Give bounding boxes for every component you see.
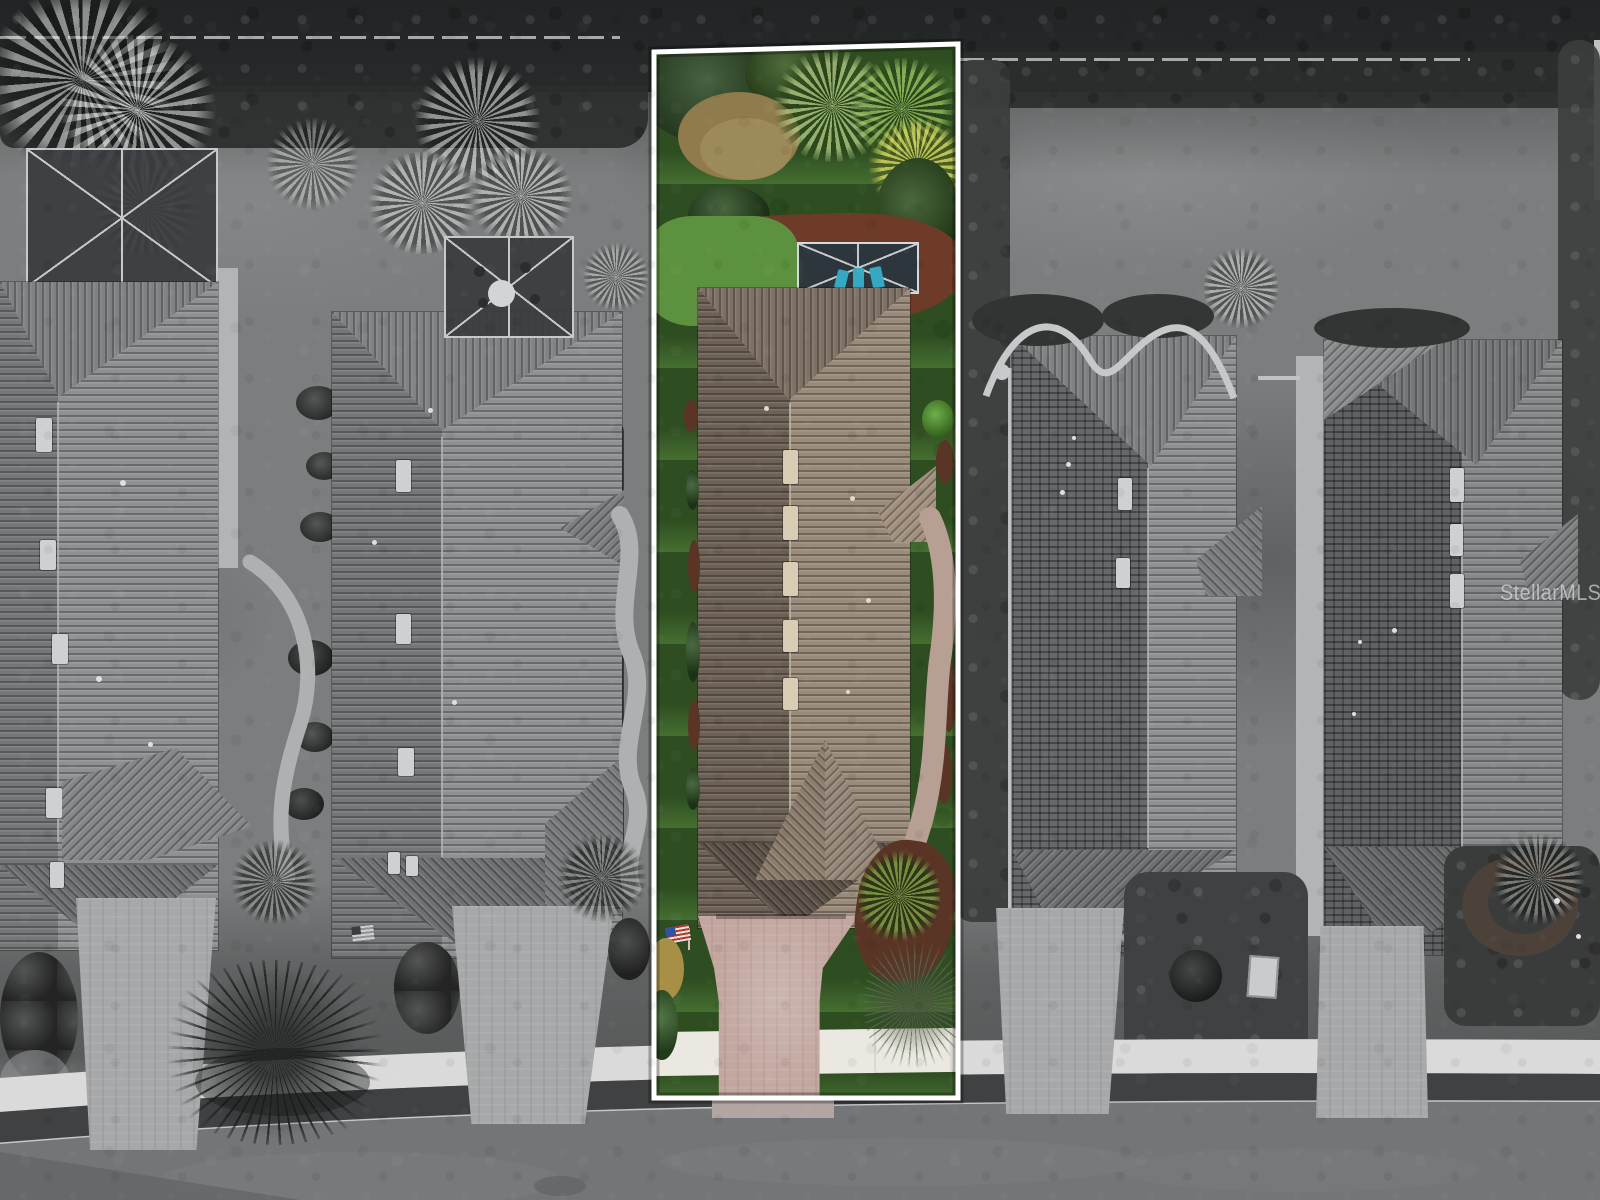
yard-marker <box>1576 934 1581 939</box>
house4-skylight <box>1118 478 1132 510</box>
house2-skylight <box>388 852 400 874</box>
lawn-patch <box>0 1050 70 1112</box>
mulch-strip <box>688 700 700 750</box>
mulch-strip <box>944 560 958 624</box>
house1-skylight <box>36 418 52 452</box>
boundary-fence-right <box>958 58 1470 61</box>
front-shrub-bed <box>394 942 460 1034</box>
border-shrub <box>686 470 699 510</box>
shrub <box>288 640 334 676</box>
roof-vent <box>850 496 855 501</box>
watermark-text: StellarMLS <box>1500 582 1600 604</box>
road-shadow <box>0 1152 300 1200</box>
mulch-strip <box>936 440 954 484</box>
mulch-strip <box>688 540 700 592</box>
mulch-strip <box>684 400 698 432</box>
shrub <box>284 788 324 820</box>
patio-chair <box>478 298 488 308</box>
shrub <box>608 918 650 980</box>
house5-side-wall <box>1296 356 1326 936</box>
house1-roof-ridge <box>57 402 59 842</box>
house5-driveway <box>1316 926 1428 1118</box>
palm-tree <box>584 240 648 314</box>
lounge-chair <box>869 266 885 289</box>
roof-vent <box>1060 490 1065 495</box>
yard-pole <box>1258 376 1300 380</box>
palm-tree <box>230 840 318 924</box>
accent-bush <box>922 400 954 438</box>
house4-roof <box>1012 336 1236 955</box>
featured-skylight <box>783 450 798 484</box>
palm-tree <box>1204 244 1278 332</box>
between-lot-vegetation <box>956 60 1010 922</box>
roof-vent <box>120 480 126 486</box>
house5-skylight <box>1450 574 1464 608</box>
house1-curved-walkway <box>250 562 308 876</box>
house2-skylight <box>396 614 411 644</box>
house2-driveway <box>452 906 614 1124</box>
roof-vent <box>866 598 871 603</box>
house2-skylight <box>406 856 418 876</box>
lounge-chair <box>853 268 864 289</box>
roof-vent <box>148 742 153 747</box>
front-shrub <box>646 990 678 1060</box>
house5-skylight <box>1450 468 1464 502</box>
house2-skylight <box>396 460 411 492</box>
roof-vent <box>846 690 850 694</box>
garage-shadow <box>716 914 846 919</box>
roof-vent <box>452 700 457 705</box>
mulch-strip <box>936 744 952 804</box>
featured-skylight <box>783 620 798 652</box>
house1-skylight <box>52 634 68 664</box>
patio-chair <box>530 294 540 304</box>
featured-skylight <box>783 678 798 710</box>
house2-yard-flag <box>351 925 374 942</box>
roof-vent <box>764 406 769 411</box>
house5-skylight <box>1450 524 1463 556</box>
roof-vent <box>1072 436 1076 440</box>
house1-skylight <box>40 540 56 570</box>
satellite-dish <box>994 364 1010 380</box>
roof-vent <box>1352 712 1356 716</box>
border-shrub <box>686 768 700 810</box>
roof-vent <box>372 540 377 545</box>
pool-enclosure <box>797 242 919 294</box>
house4-skylight <box>1116 558 1130 588</box>
house4-roof-ridge <box>1147 468 1149 848</box>
palm-tree <box>1494 832 1584 926</box>
featured-skylight <box>783 506 798 540</box>
patio-chair <box>520 262 531 273</box>
house2-patio-cage <box>444 236 574 338</box>
shrub <box>296 722 334 752</box>
aerial-photo: StellarMLS <box>0 0 1600 1200</box>
featured-driveway-apron <box>712 1096 834 1118</box>
featured-skylight <box>783 562 798 596</box>
yard-marker <box>1554 898 1560 904</box>
road-patch <box>160 1152 560 1200</box>
roof-vent <box>96 676 102 682</box>
tree-shadow <box>195 1048 370 1116</box>
roof-vent <box>1066 462 1071 467</box>
front-tree <box>864 926 964 1082</box>
patio-table <box>488 280 515 307</box>
lounge-chair <box>834 269 849 290</box>
roof-vent <box>1392 628 1397 633</box>
road-patch <box>1120 1148 1480 1192</box>
house1-skylight <box>50 862 64 888</box>
tree-canopy-over-roof <box>1102 294 1214 338</box>
house1-skylight <box>46 788 62 818</box>
palm-tree <box>465 148 577 244</box>
garden-shed <box>1247 955 1280 999</box>
road-patch <box>660 1138 1140 1186</box>
palm-tree <box>556 834 648 922</box>
border-shrub <box>686 622 700 682</box>
house2-skylight <box>398 748 414 776</box>
house4-driveway <box>996 908 1124 1114</box>
road-mark <box>534 1176 586 1196</box>
roof-vent <box>428 408 433 413</box>
house1-roof-left-face <box>0 282 58 950</box>
house2-roof-ridge <box>441 437 443 857</box>
patio-chair <box>474 266 485 277</box>
mulch-strip <box>942 660 956 732</box>
roof-vent <box>1358 640 1362 644</box>
palm-tree <box>265 118 360 210</box>
garden-bush <box>1170 950 1222 1002</box>
house1-sunroom-cage <box>26 148 218 288</box>
